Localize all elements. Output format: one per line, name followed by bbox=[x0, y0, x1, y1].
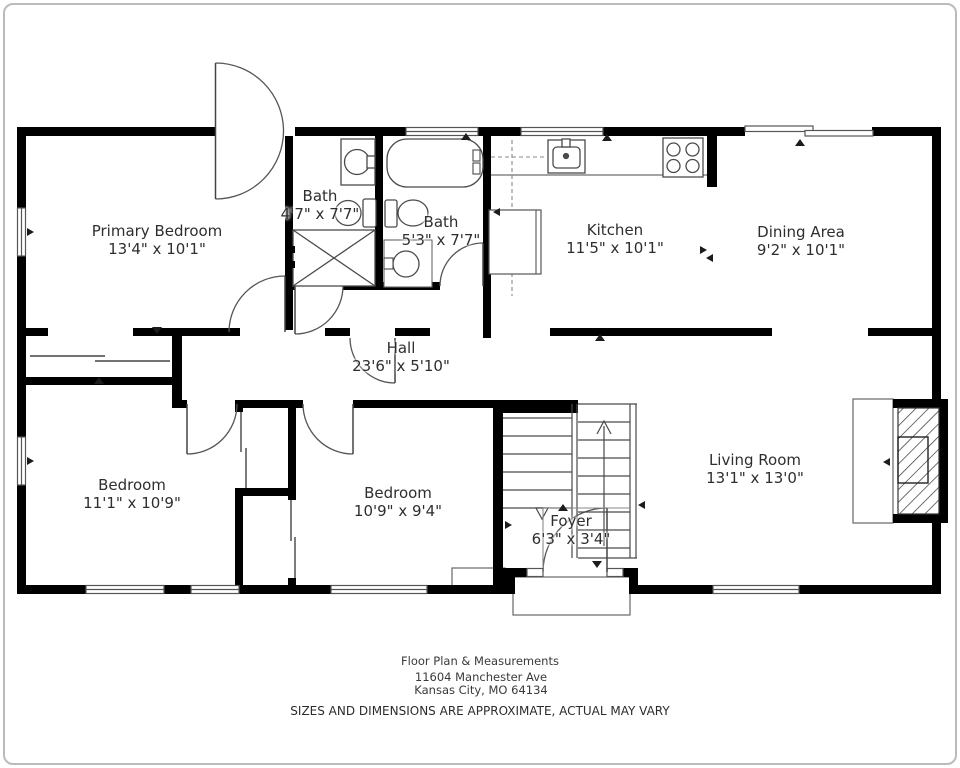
fireplace-icon bbox=[853, 399, 948, 523]
room-label-hall: Hall 23'6" x 5'10" bbox=[352, 339, 450, 375]
room-label-bath-2: Bath 5'3" x 7'7" bbox=[402, 213, 481, 249]
room-dims: 13'1" x 13'0" bbox=[706, 469, 804, 487]
footer-address-line2: Kansas City, MO 64134 bbox=[414, 683, 547, 697]
room-dims: 11'5" x 10'1" bbox=[566, 239, 664, 257]
bathtub-icon bbox=[387, 139, 483, 187]
room-name: Hall bbox=[352, 339, 450, 357]
room-dims: 10'9" x 9'4" bbox=[354, 502, 442, 520]
bath1-sink-icon bbox=[341, 139, 375, 185]
room-name: Bedroom bbox=[83, 476, 181, 494]
room-name: Bath bbox=[402, 213, 481, 231]
bath-2-door-arc bbox=[440, 243, 483, 286]
kitchen-fixtures bbox=[489, 138, 707, 296]
kitchen-sink-icon bbox=[548, 139, 585, 173]
primary-bedroom-door-arc bbox=[229, 276, 285, 332]
room-label-dining-area: Dining Area 9'2" x 10'1" bbox=[757, 223, 845, 259]
footer-disclaimer: SIZES AND DIMENSIONS ARE APPROXIMATE, AC… bbox=[290, 704, 669, 718]
double-door-arc bbox=[216, 63, 284, 199]
floor-plan-canvas: Primary Bedroom 13'4" x 10'1" Bath 4'7" … bbox=[0, 0, 960, 768]
room-dims: 23'6" x 5'10" bbox=[352, 357, 450, 375]
floor-plan-drawing bbox=[0, 0, 960, 768]
room-name: Bedroom bbox=[354, 484, 442, 502]
room-name: Foyer bbox=[532, 512, 611, 530]
room-label-bedroom-middle: Bedroom 10'9" x 9'4" bbox=[354, 484, 442, 520]
room-label-kitchen: Kitchen 11'5" x 10'1" bbox=[566, 221, 664, 257]
sliding-door bbox=[745, 126, 873, 136]
room-name: Kitchen bbox=[566, 221, 664, 239]
room-dims: 4'7" x 7'7" bbox=[281, 205, 360, 223]
bedroom-left-door-arc bbox=[187, 404, 237, 454]
room-label-bedroom-left: Bedroom 11'1" x 10'9" bbox=[83, 476, 181, 512]
room-dims: 11'1" x 10'9" bbox=[83, 494, 181, 512]
footer-title: Floor Plan & Measurements bbox=[401, 654, 559, 668]
room-label-living-room: Living Room 13'1" x 13'0" bbox=[706, 451, 804, 487]
room-dims: 9'2" x 10'1" bbox=[757, 241, 845, 259]
room-label-primary-bedroom: Primary Bedroom 13'4" x 10'1" bbox=[92, 222, 223, 258]
room-name: Dining Area bbox=[757, 223, 845, 241]
room-name: Living Room bbox=[706, 451, 804, 469]
room-name: Primary Bedroom bbox=[92, 222, 223, 240]
stove-icon bbox=[663, 138, 703, 177]
room-label-foyer: Foyer 6'3" x 3'4" bbox=[532, 512, 611, 548]
room-dims: 5'3" x 7'7" bbox=[402, 231, 481, 249]
room-dims: 13'4" x 10'1" bbox=[92, 240, 223, 258]
shower-icon bbox=[286, 230, 375, 286]
bedroom-middle-door-arc bbox=[303, 404, 353, 454]
refrigerator-icon bbox=[489, 210, 541, 274]
footer-address-line1: 11604 Manchester Ave bbox=[415, 670, 547, 684]
room-dims: 6'3" x 3'4" bbox=[532, 530, 611, 548]
room-label-bath-1: Bath 4'7" x 7'7" bbox=[281, 187, 360, 223]
bath-1-door-arc bbox=[295, 286, 343, 334]
closet-bifold-doors bbox=[30, 356, 295, 578]
room-name: Bath bbox=[281, 187, 360, 205]
